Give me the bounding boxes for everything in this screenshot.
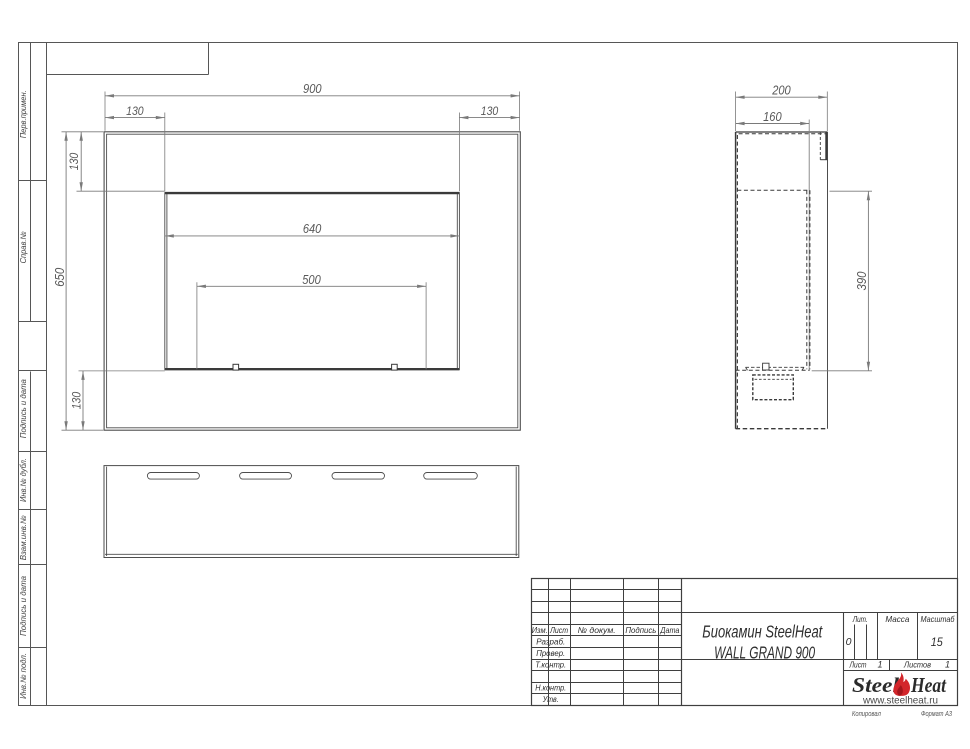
- svg-text:Формат А3: Формат А3: [921, 711, 952, 718]
- svg-text:Инв.№ дубл.: Инв.№ дубл.: [19, 458, 28, 502]
- svg-text:Копировал: Копировал: [852, 711, 881, 718]
- svg-text:Перв.примен.: Перв.примен.: [19, 90, 28, 138]
- svg-text:Разраб.: Разраб.: [536, 636, 565, 646]
- svg-text:№ докум.: № докум.: [578, 625, 616, 635]
- svg-text:200: 200: [771, 84, 790, 98]
- svg-text:Подпись: Подпись: [625, 625, 656, 635]
- svg-text:640: 640: [303, 222, 322, 236]
- svg-text:900: 900: [303, 82, 322, 96]
- svg-text:Провер.: Провер.: [536, 648, 565, 658]
- svg-text:130: 130: [481, 104, 499, 118]
- svg-text:15: 15: [931, 635, 943, 649]
- svg-text:Лист: Лист: [849, 660, 867, 670]
- svg-text:Справ.№: Справ.№: [19, 231, 28, 263]
- svg-text:Heat: Heat: [910, 673, 947, 697]
- svg-text:WALL GRAND 900: WALL GRAND 900: [714, 642, 815, 662]
- svg-text:1: 1: [945, 660, 950, 670]
- svg-text:Взам.инв.№: Взам.инв.№: [19, 515, 28, 560]
- svg-text:130: 130: [69, 392, 83, 410]
- svg-text:130: 130: [67, 152, 81, 170]
- svg-text:Подпись и дата: Подпись и дата: [19, 575, 28, 636]
- svg-text:www.steelheat.ru: www.steelheat.ru: [862, 695, 938, 707]
- svg-text:0: 0: [846, 636, 852, 648]
- svg-text:Дата: Дата: [660, 625, 680, 635]
- svg-text:130: 130: [126, 104, 144, 118]
- svg-text:Лит.: Лит.: [852, 614, 868, 624]
- svg-text:1: 1: [877, 660, 882, 670]
- svg-text:Лист: Лист: [549, 625, 568, 635]
- svg-text:500: 500: [302, 273, 321, 287]
- svg-text:Н.контр.: Н.контр.: [535, 683, 566, 693]
- svg-text:Подпись и дата: Подпись и дата: [19, 379, 28, 439]
- svg-text:Steel: Steel: [852, 673, 899, 697]
- svg-text:Биокамин SteelHeat: Биокамин SteelHeat: [702, 621, 823, 641]
- svg-text:Масштаб: Масштаб: [921, 614, 956, 624]
- svg-text:Листов: Листов: [903, 660, 931, 670]
- svg-text:Изм.: Изм.: [532, 625, 548, 635]
- svg-text:160: 160: [763, 110, 782, 124]
- svg-text:Утв.: Утв.: [542, 694, 559, 704]
- svg-text:Масса: Масса: [885, 614, 909, 624]
- svg-text:390: 390: [855, 271, 869, 290]
- svg-text:650: 650: [53, 268, 67, 287]
- svg-text:Т.контр.: Т.контр.: [535, 659, 566, 669]
- svg-text:Инв.№ подл.: Инв.№ подл.: [19, 653, 28, 699]
